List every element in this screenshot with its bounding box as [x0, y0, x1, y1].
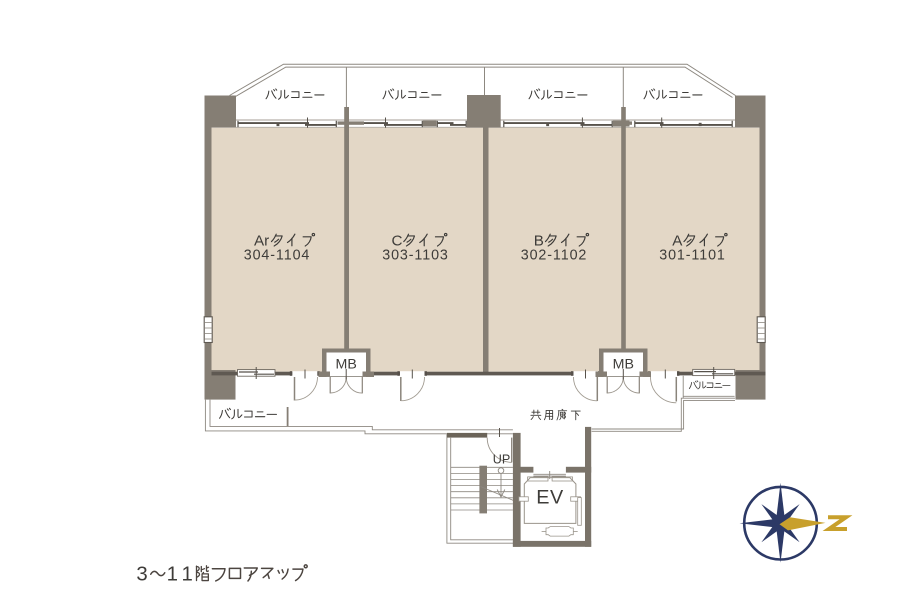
svg-text:303-1103: 303-1103 — [382, 248, 449, 264]
svg-text:301-1101: 301-1101 — [659, 248, 726, 264]
svg-text:302-1102: 302-1102 — [521, 248, 588, 264]
svg-text:C: C — [392, 233, 403, 250]
svg-text:EV: EV — [536, 486, 564, 508]
svg-text:B: B — [534, 233, 544, 250]
svg-text:MB: MB — [336, 357, 357, 373]
svg-text:1: 1 — [182, 564, 193, 586]
svg-text:304-1104: 304-1104 — [244, 248, 311, 264]
svg-text:3: 3 — [136, 564, 147, 586]
svg-text:MB: MB — [613, 357, 634, 373]
svg-text:UP: UP — [493, 452, 511, 466]
svg-text:1: 1 — [167, 564, 178, 586]
svg-text:Ar: Ar — [254, 233, 269, 250]
svg-text:A: A — [672, 233, 683, 250]
